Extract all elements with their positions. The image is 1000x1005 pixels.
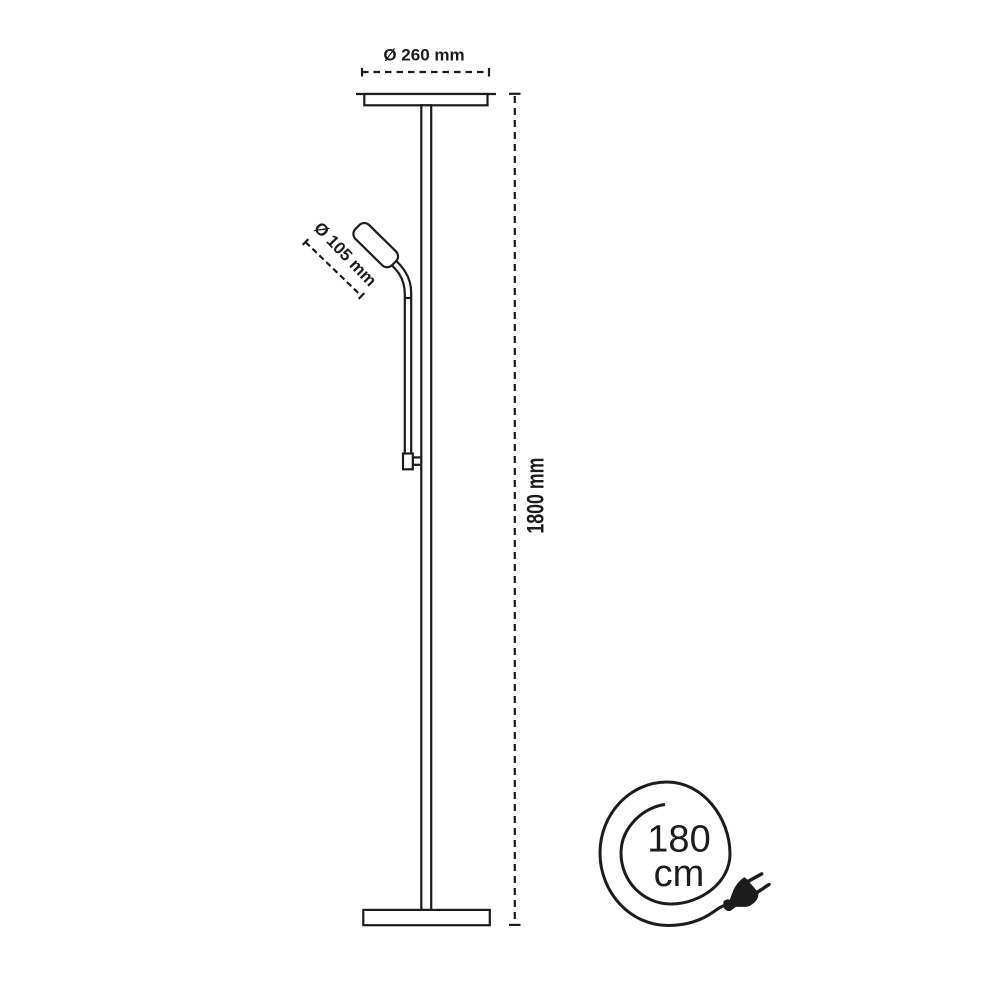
svg-text:1800 mm: 1800 mm <box>523 458 549 534</box>
svg-text:cm: cm <box>654 853 705 895</box>
svg-text:Ø 260 mm: Ø 260 mm <box>383 46 464 65</box>
